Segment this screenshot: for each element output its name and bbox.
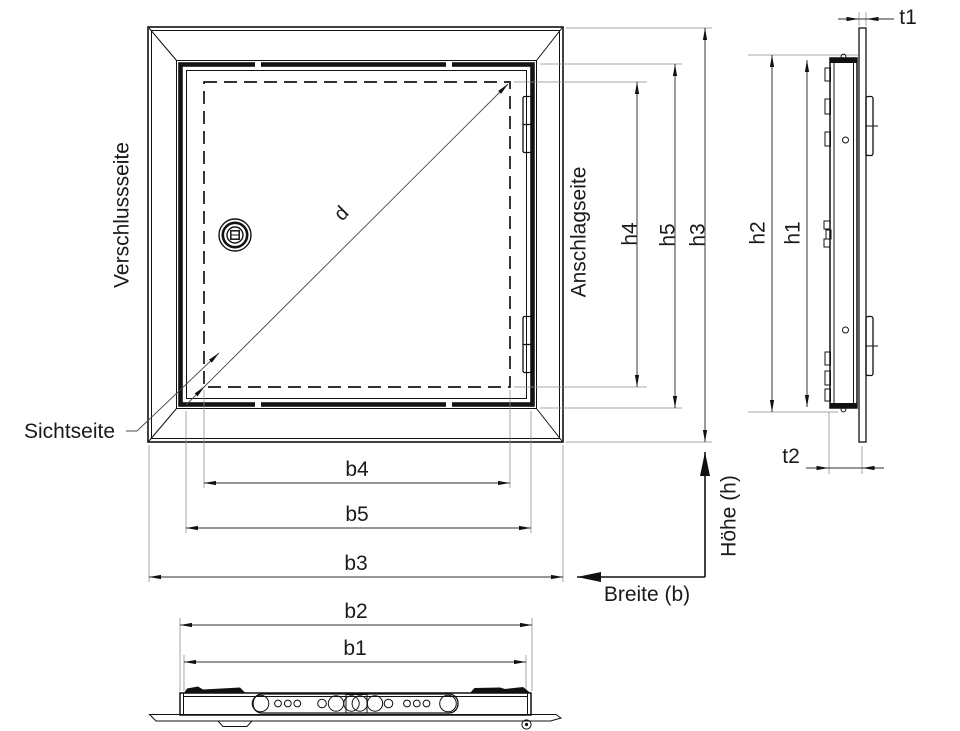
pin-hole-upper: [843, 137, 849, 143]
label-h4: h4: [618, 222, 641, 246]
technical-drawing-page: h4 h5 h3 b4 b5 b3 Höhe (h) Breite (b) h2…: [0, 0, 960, 731]
bottom-view: b2 b1: [150, 600, 562, 729]
width-dimensions: b4 b5 b3: [149, 390, 563, 582]
label-h1: h1: [781, 221, 804, 244]
label-breite-axis: Breite (b): [604, 583, 690, 606]
miter-corner-lines: [149, 28, 562, 441]
label-b5: b5: [345, 503, 368, 526]
coordinate-axes: Höhe (h) Breite (b): [577, 452, 740, 606]
label-anschlagseite: Anschlagseite: [567, 167, 590, 298]
dim-t1: t1: [838, 6, 917, 29]
pin-hole-lower: [843, 327, 849, 333]
label-h3: h3: [686, 223, 709, 246]
hinge-leaf-upper: [866, 97, 878, 156]
label-b4: b4: [345, 458, 369, 481]
label-verschlussseite: Verschlussseite: [110, 142, 133, 288]
access-panel-drawing: h4 h5 h3 b4 b5 b3 Höhe (h) Breite (b) h2…: [0, 0, 960, 731]
label-hoehe-axis: Höhe (h): [717, 475, 740, 557]
label-d: d: [330, 202, 353, 225]
wall-flange-plate: [859, 28, 866, 442]
height-dimensions: h4 h5 h3: [514, 28, 712, 442]
bottom-tab: [218, 721, 252, 727]
outer-frame: [148, 27, 563, 442]
label-t2: t2: [782, 445, 800, 468]
hinge-leaf-lower: [866, 317, 878, 376]
label-b3: b3: [344, 552, 367, 575]
dim-t2: t2: [782, 412, 884, 474]
label-t1: t1: [899, 6, 917, 29]
front-view: [126, 27, 563, 442]
sichtseite-leader: [126, 353, 219, 431]
frame-clip-marks: [255, 62, 452, 407]
latch-slider: [344, 695, 368, 714]
label-h2: h2: [746, 221, 769, 244]
label-b1: b1: [343, 637, 366, 660]
side-view: h2 h1 t1 t2: [746, 6, 916, 474]
outer-frame-inner-line: [152, 31, 560, 439]
hinge-strap-right: [470, 687, 531, 693]
label-sichtseite: Sichtseite: [24, 420, 115, 443]
hinge-strap-left: [184, 687, 246, 694]
label-h5: h5: [656, 223, 679, 246]
label-b2: b2: [344, 600, 367, 623]
diagonal-dimension: [126, 84, 508, 431]
lock: [219, 219, 251, 251]
